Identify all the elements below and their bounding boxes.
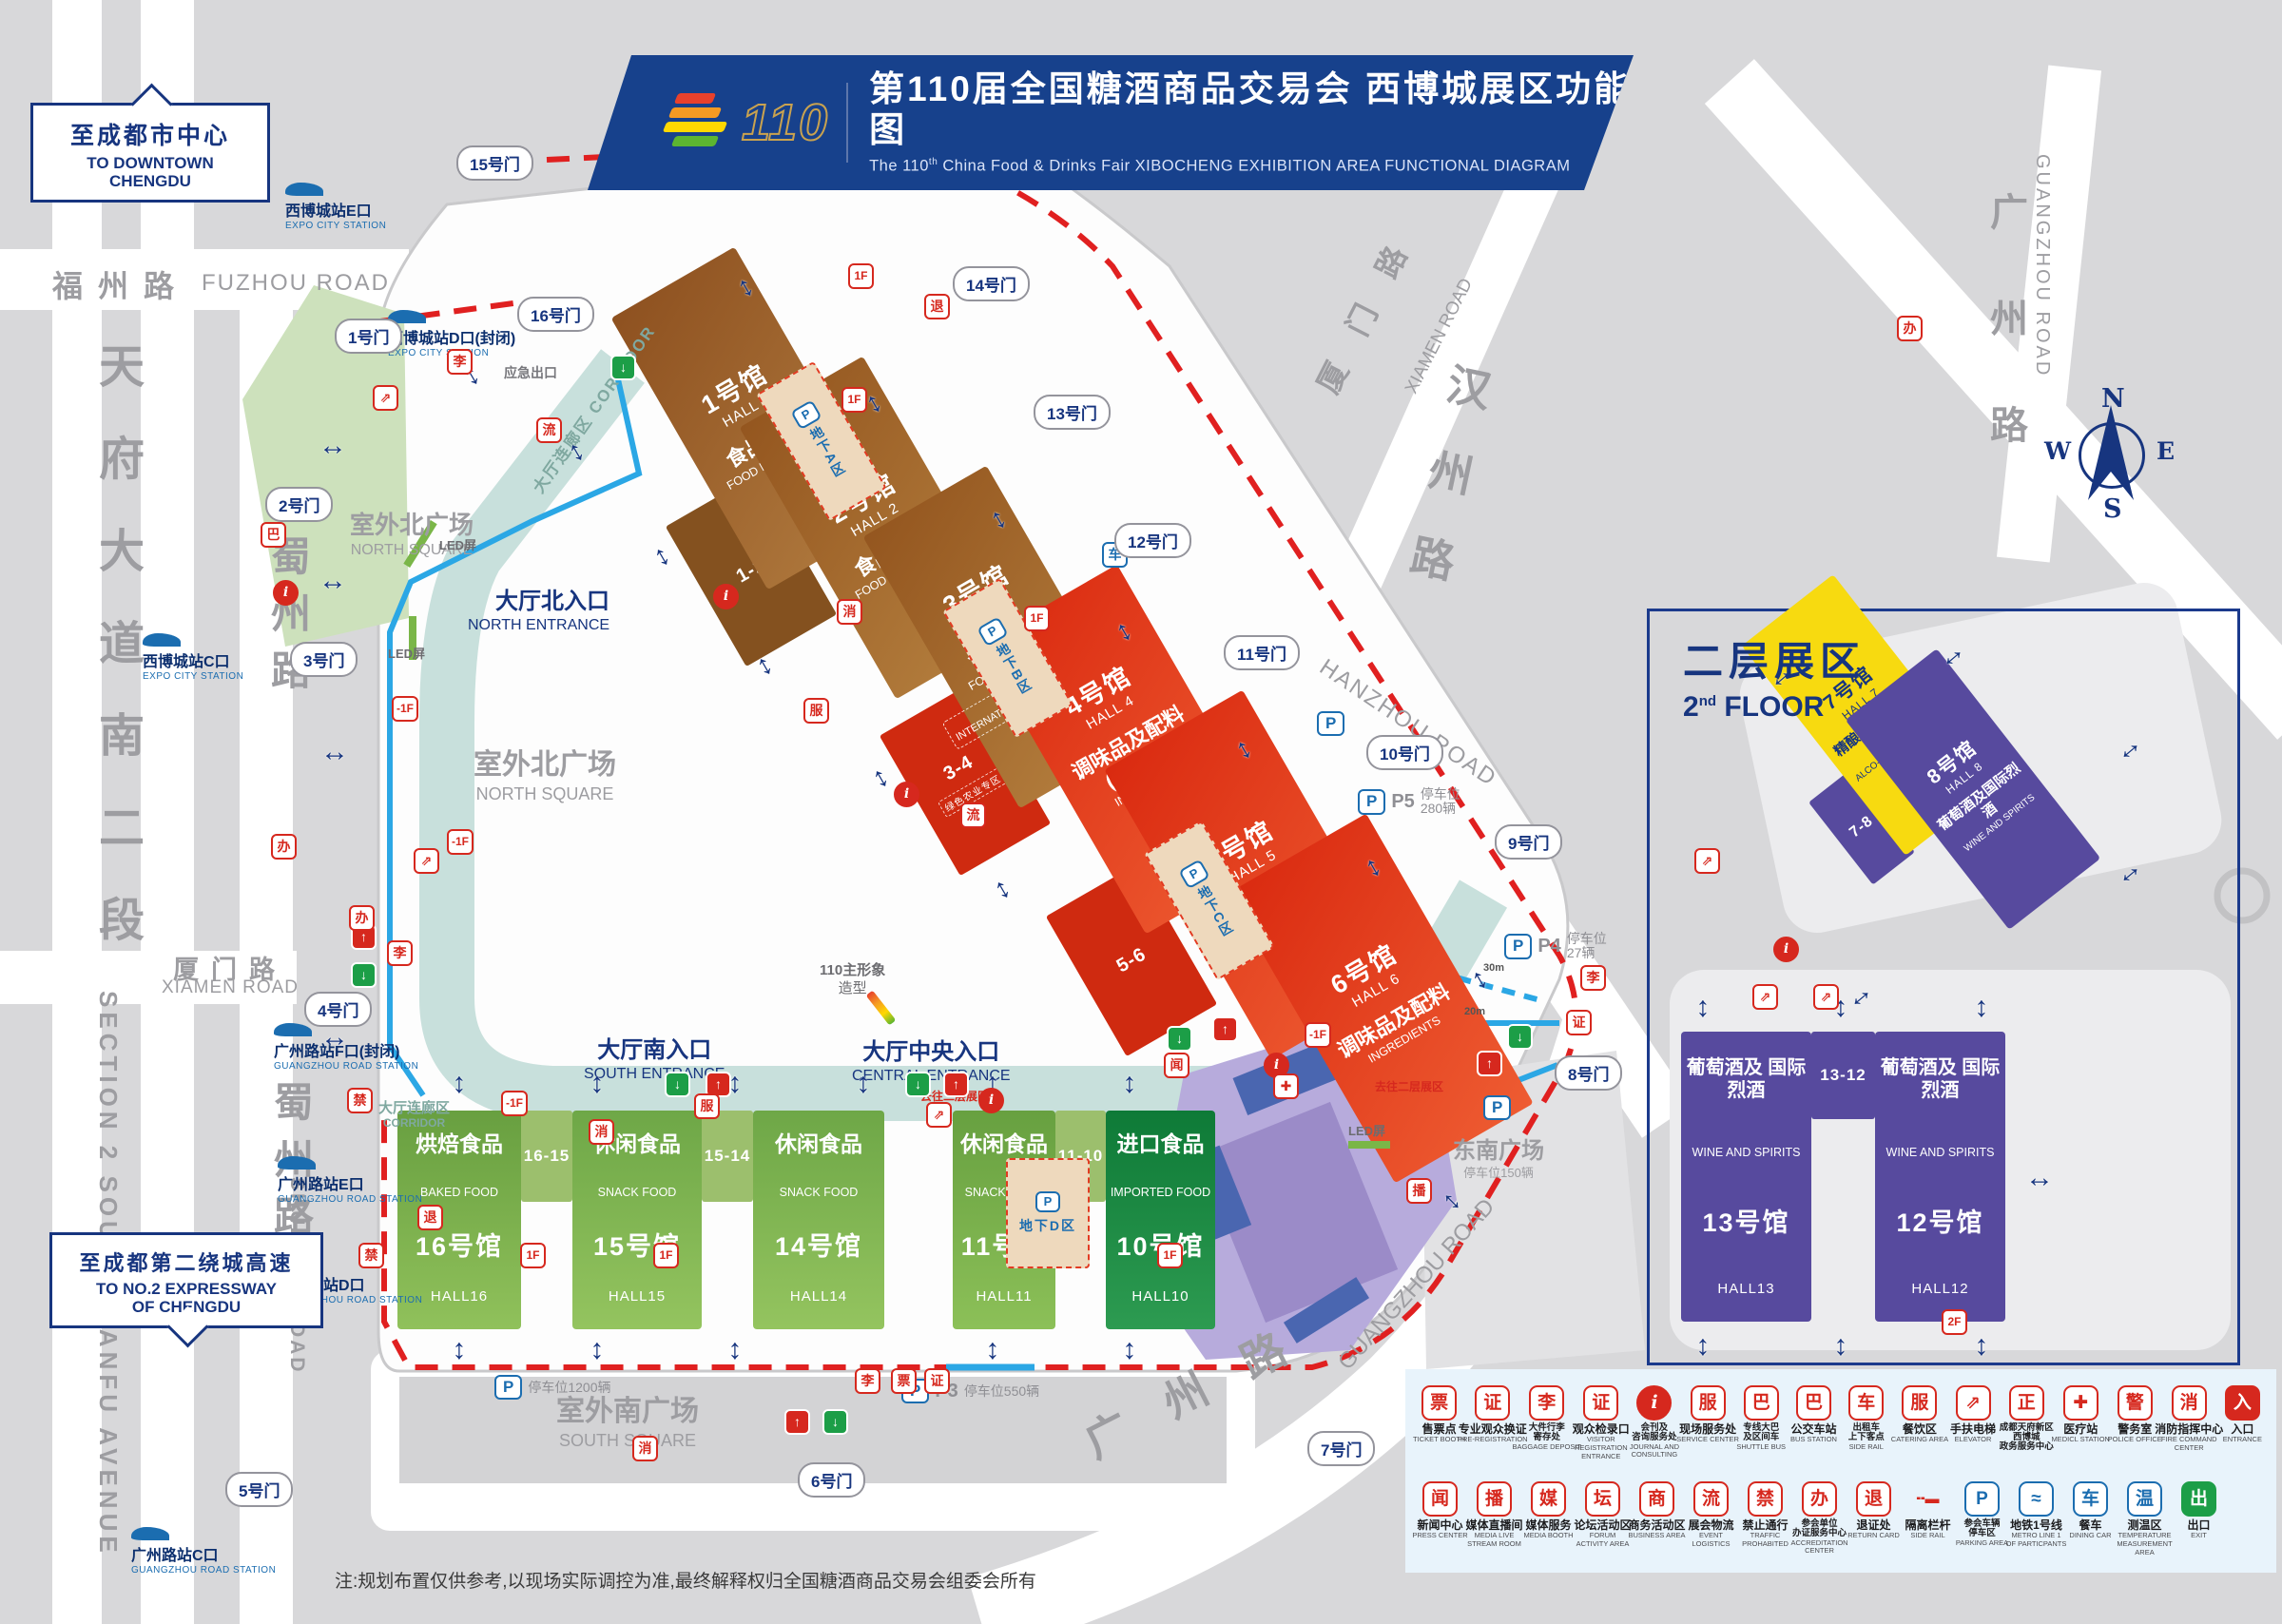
legend-label-cn: 地铁1号线 xyxy=(2010,1519,2062,1532)
no-entry-icon: 禁 xyxy=(1748,1481,1783,1517)
compass-ring xyxy=(2079,422,2145,489)
metro-station-name-en: EXPO CITY STATION xyxy=(285,221,466,231)
hall-text: HALL13 xyxy=(1717,1281,1774,1297)
legend-label-cn: 媒体直播间 xyxy=(1466,1519,1523,1532)
return-card-icon: 退 xyxy=(924,294,950,319)
hall-text: HALL14 xyxy=(790,1288,847,1305)
hall-text: 休闲食品 xyxy=(775,1131,862,1158)
registration-icon: 证 xyxy=(1475,1385,1510,1421)
legend-item: 车出租车 上下客点SIDE RAIL xyxy=(1840,1385,1892,1460)
floor-minus1f: -1F xyxy=(501,1091,528,1116)
service-icon: 坛 xyxy=(1585,1481,1620,1517)
legend-label-en: RETURN CARD xyxy=(1847,1532,1900,1540)
accreditation-icon: 办 xyxy=(1897,316,1923,341)
gate-g9: 9号门 xyxy=(1495,824,1562,860)
legend-label-en: TEMPERATURE MEASUREMENT AREA xyxy=(2117,1532,2172,1556)
legend-label-en: ELEVATOR xyxy=(1955,1436,1992,1444)
entrance-icon: ↑ xyxy=(784,1409,810,1435)
metro-station-name-en: GUANGZHOU ROAD STATION xyxy=(131,1565,312,1576)
legend-label-en: SIDE RAIL xyxy=(1849,1443,1884,1452)
legend-label-cn: 参会车辆 停车区 xyxy=(1963,1519,2000,1538)
legend-label-en: FORUM ACTIVITY AREA xyxy=(1576,1532,1630,1548)
connector-label: 3-4 xyxy=(940,751,977,785)
label-line: 停车位150辆 xyxy=(1453,1166,1544,1181)
legend-label-en: MEDIA BOOTH xyxy=(1523,1532,1573,1540)
baggage-icon: 李 xyxy=(1529,1385,1564,1421)
parking-pkse: P xyxy=(1483,1095,1511,1120)
exit-icon: 出 xyxy=(2181,1481,2216,1517)
legend-item: 办参会单位 办证服务中心ACCREDITATION CENTER xyxy=(1792,1481,1847,1556)
service-icon: 服 xyxy=(1902,1385,1937,1421)
label-line: 大厅中央入口 xyxy=(852,1038,1011,1067)
direction-arrow-icon: ↔ xyxy=(1691,995,1723,1023)
parking-capacity: 停车位1200辆 xyxy=(528,1381,610,1395)
direction-arrow-icon: ↔ xyxy=(447,1337,479,1365)
exit-icon: ↓ xyxy=(665,1072,690,1097)
bus-icon: 巴 xyxy=(1796,1385,1831,1421)
exit-icon: ↓ xyxy=(610,355,636,380)
accreditation-icon: 办 xyxy=(349,905,375,931)
legend-item: 温测温区TEMPERATURE MEASUREMENT AREA xyxy=(2118,1481,2172,1556)
label-line: 20m xyxy=(1464,1006,1485,1019)
metro-station-m_c_gz: 广州路站C口GUANGZHOU ROAD STATION xyxy=(131,1527,312,1576)
registration-icon: 证 xyxy=(1583,1385,1618,1421)
legend-label-cn: 专线大巴 及区间车 xyxy=(1743,1423,1779,1442)
legend-item: 禁禁止通行TRAFFIC PROHABITED xyxy=(1738,1481,1792,1556)
label-line: 去往二层展区 xyxy=(1375,1080,1443,1094)
legend-label-cn: 医疗站 xyxy=(2063,1423,2098,1436)
medical-icon: ✚ xyxy=(1273,1073,1299,1099)
label-line: NORTH SQUARE xyxy=(474,783,616,805)
ticket-icon: 票 xyxy=(891,1368,917,1394)
return-card-icon: 退 xyxy=(417,1205,443,1230)
legend-label-en: CATERING AREA xyxy=(1891,1436,1948,1444)
legend-label-cn: 售票点 xyxy=(1422,1423,1457,1436)
legend-label-en: ACCREDITATION CENTER xyxy=(1790,1539,1847,1556)
info-icon: i xyxy=(978,1088,1004,1113)
connector-c1312: 13-12 xyxy=(1811,1032,1875,1119)
label-line: 110主形象 xyxy=(820,962,885,980)
metro-station-name: 广州路站E口 xyxy=(278,1171,458,1194)
hall-text: 进口食品 xyxy=(1117,1131,1205,1158)
gate-g16: 16号门 xyxy=(517,297,594,332)
label-line: 室外南广场 xyxy=(556,1394,699,1430)
parking-pk4: PP4停车位 27辆 xyxy=(1504,932,1607,961)
label-line: 东南广场 xyxy=(1453,1137,1544,1166)
escalator-icon: ⇗ xyxy=(926,1102,952,1128)
logistics-icon: 流 xyxy=(536,417,562,443)
legend-label-en: SHUTTLE BUS xyxy=(1736,1443,1786,1452)
legend-label-cn: 消防指挥中心 xyxy=(2155,1423,2223,1436)
direction-arrow-icon: ↔ xyxy=(1691,1333,1723,1362)
legend-label-en: SERVICE CENTER xyxy=(1676,1436,1739,1444)
floor-1f: 1F xyxy=(848,263,874,289)
legend-label-cn: 餐车 xyxy=(2079,1519,2101,1532)
legend-label-cn: 会刊及 咨询服务处 xyxy=(1632,1423,1677,1442)
entrance-icon: ↑ xyxy=(943,1072,969,1097)
metro-station-name-en: GUANGZHOU ROAD STATION xyxy=(278,1194,458,1205)
media-icon: 播 xyxy=(1406,1178,1432,1204)
floor2-title-cn: 二层展区 xyxy=(1683,629,1866,687)
floor-1f: 1F xyxy=(841,387,867,413)
legend-label-en: PARKING AREA xyxy=(1956,1539,2008,1548)
divider xyxy=(846,83,848,163)
press-icon: 闻 xyxy=(1164,1053,1189,1078)
direction-arrow-icon: ↔ xyxy=(319,565,347,597)
entrance-icon: 入 xyxy=(2225,1385,2260,1421)
legend-label-en: EVENT LOGISTICS xyxy=(1692,1532,1730,1548)
direction-arrow-icon: ↔ xyxy=(2025,1162,2054,1194)
barrier-icon: ╍▬ xyxy=(1910,1481,1945,1517)
info-icon: i xyxy=(1773,937,1799,962)
page-title: 第110届全国糖酒商品交易会 西博城展区功能图 xyxy=(869,69,1634,150)
exit-icon: ↓ xyxy=(822,1409,848,1435)
connector-c1615: 16-15 xyxy=(521,1111,572,1202)
floor-1f: 1F xyxy=(520,1243,546,1268)
legend-label-cn: 出口 xyxy=(2187,1519,2210,1532)
hall-text: SNACK FOOD xyxy=(780,1186,859,1199)
legend-label-cn: 现场服务处 xyxy=(1679,1423,1736,1436)
escalator-icon: ⇗ xyxy=(1694,848,1720,874)
gate-g4: 4号门 xyxy=(304,992,372,1027)
legend-label-en: ENTRANCE xyxy=(2223,1436,2262,1444)
parking-icon: P xyxy=(1483,1095,1511,1120)
direction-arrow-icon: ↔ xyxy=(1117,1337,1150,1365)
label-lbl_nsq2: 室外北广场NORTH SQUARE xyxy=(474,747,616,804)
legend-label-cn: 新闻中心 xyxy=(1417,1519,1462,1532)
hall-text: 葡萄酒及 国际烈酒 xyxy=(1685,1056,1808,1102)
legend-label-cn: 出租车 上下客点 xyxy=(1848,1423,1885,1442)
legend-item: 李大件行李 寄存处BAGGAGE DEPOSIT xyxy=(1519,1385,1574,1460)
service-icon: 服 xyxy=(803,698,829,724)
gate-g10: 10号门 xyxy=(1366,735,1443,770)
legend-row: 闻新闻中心PRESS CENTER播媒体直播间MEDIA LIVE STREAM… xyxy=(1413,1481,2269,1556)
hall-h12: 葡萄酒及 国际烈酒WINE AND SPIRITS12号馆HALL12 xyxy=(1875,1032,2005,1322)
legend-label-cn: 禁止通行 xyxy=(1742,1519,1788,1532)
road-label-rtf: 天 府 大 道 南 二 段 xyxy=(95,321,148,967)
legend-label-en: PRESS CENTER xyxy=(1412,1532,1467,1540)
ticket-icon: 票 xyxy=(1421,1385,1457,1421)
direction-arrow-icon: ↔ xyxy=(320,736,349,768)
disclaimer-note: 注:规划布置仅供参考,以现场实际调控为准,最终解释权归全国糖酒商品交易会组委会所… xyxy=(335,1571,1036,1594)
label-lbl_go2: 去往二层展区 xyxy=(1375,1080,1443,1094)
legend-label-cn: 论坛活动区 xyxy=(1575,1519,1632,1532)
gate-g14: 14号门 xyxy=(953,266,1030,301)
service-icon: 警 xyxy=(2118,1385,2153,1421)
exit-icon: ↓ xyxy=(905,1072,931,1097)
title-banner: 110 第110届全国糖酒商品交易会 西博城展区功能图 The 110th Ch… xyxy=(588,55,1634,190)
direction-arrow-icon: ↔ xyxy=(1969,1333,2002,1362)
direction-arrow-icon: ↔ xyxy=(447,1071,479,1099)
legend-label-cn: 媒体服务 xyxy=(1525,1519,1571,1532)
legend-label-en: SIDE RAIL xyxy=(1910,1532,1944,1540)
hall-h10: 进口食品IMPORTED FOOD10号馆HALL10 xyxy=(1106,1111,1215,1329)
floor-minus1f: -1F xyxy=(392,696,418,722)
direction-arrow-icon: ↔ xyxy=(723,1337,755,1365)
parking-icon: P xyxy=(1964,1481,2000,1517)
legend-label-cn: 商务活动区 xyxy=(1629,1519,1686,1532)
accreditation-icon: 办 xyxy=(1802,1481,1837,1517)
road-label-rxm1-en: XIAMEN ROAD xyxy=(162,977,299,998)
gate-g12: 12号门 xyxy=(1114,523,1191,558)
gate-g6: 6号门 xyxy=(798,1462,865,1498)
metro-station-m_e_gz: 广州路站E口GUANGZHOU ROAD STATION xyxy=(278,1156,458,1205)
legend-label-cn: 餐饮区 xyxy=(1903,1423,1937,1436)
legend-item: 出出口EXIT xyxy=(2172,1481,2226,1556)
logistics-icon: 流 xyxy=(1693,1481,1729,1517)
legend-label-cn: 观众检录口 xyxy=(1573,1423,1630,1436)
legend-item: 商商务活动区BUSINESS AREA xyxy=(1630,1481,1684,1556)
fire-icon: 消 xyxy=(632,1436,658,1461)
hall-text: WINE AND SPIRITS xyxy=(1886,1146,1995,1159)
legend-item: ≈地铁1号线METRO LINE 1 OF PARTICPANTS xyxy=(2009,1481,2063,1556)
direction-arrow-icon: ↔ xyxy=(1969,995,2002,1023)
metro-icon xyxy=(274,1023,312,1036)
legend-item: i会刊及 咨询服务处JOURNAL AND CONSULTING xyxy=(1628,1385,1680,1460)
media-icon: 媒 xyxy=(1531,1481,1566,1517)
parking-number: P4 xyxy=(1537,936,1560,957)
gate-g11: 11号门 xyxy=(1224,635,1300,670)
road-label-rgz1-cn: 广 州 路 xyxy=(1987,160,2031,479)
parking-capacity: 停车位 27辆 xyxy=(1567,932,1607,961)
entrance-icon: ↑ xyxy=(1477,1051,1502,1076)
sign-expressway: 至成都第二绕城高速 TO NO.2 EXPRESSWAYOF CHENGDU xyxy=(49,1232,323,1328)
floor-minus1f: -1F xyxy=(1305,1022,1331,1048)
legend-item: 证观众检录口VISITOR REGISTRATION ENTRANCE xyxy=(1574,1385,1628,1460)
legend-label-en: BUS STATION xyxy=(1790,1436,1837,1444)
fire-icon: 消 xyxy=(2172,1385,2207,1421)
floor2-title-en: 2nd FLOOR xyxy=(1683,691,1866,724)
fair-logo-icon xyxy=(654,86,736,160)
metro-icon xyxy=(278,1156,316,1170)
hall-text: SNACK FOOD xyxy=(598,1186,677,1199)
legend-label-en: POLICE OFFICE xyxy=(2108,1436,2162,1444)
legend-item: 入入口ENTRANCE xyxy=(2216,1385,2269,1460)
legend-label-cn: 展会物流 xyxy=(1688,1519,1733,1532)
accreditation-icon: 办 xyxy=(271,834,297,860)
connector-label: 13-12 xyxy=(1820,1066,1866,1085)
metro-icon: ≈ xyxy=(2019,1481,2054,1517)
parking-capacity: 停车位 280辆 xyxy=(1421,787,1460,817)
label-lbl_20m: 20m xyxy=(1464,1006,1485,1019)
legend-item: ╍▬隔离栏杆SIDE RAIL xyxy=(1901,1481,1955,1556)
legend-item: 警警务室POLICE OFFICE xyxy=(2108,1385,2162,1460)
sign-downtown: 至成都市中心 TO DOWNTOWNCHENGDU xyxy=(30,103,270,203)
direction-arrow-icon: ↔ xyxy=(1828,1333,1861,1362)
return-card-icon: 退 xyxy=(1856,1481,1891,1517)
label-line: LED屏 xyxy=(388,647,425,662)
metro-station-name: 西博城站E口 xyxy=(285,198,466,221)
legend-label-en: FIRE COMMAND CENTER xyxy=(2161,1436,2217,1452)
baggage-icon: 李 xyxy=(387,940,413,966)
baggage-icon: 李 xyxy=(447,349,473,375)
legend-item: 巴公交车站BUS STATION xyxy=(1788,1385,1840,1460)
hall-text: WINE AND SPIRITS xyxy=(1692,1146,1801,1159)
parking-number: P5 xyxy=(1391,791,1414,813)
road-label-rfz-en: FUZHOU ROAD xyxy=(202,270,390,297)
underground-parking-uD: P地下D区 xyxy=(1006,1158,1090,1268)
parking-icon: P xyxy=(1358,789,1385,814)
floor2-title: 二层展区 2nd FLOOR xyxy=(1683,629,1866,724)
dining-car-icon: 车 xyxy=(2073,1481,2108,1517)
direction-arrow-icon: ↔ xyxy=(980,1337,1013,1365)
hall-h14: 休闲食品SNACK FOOD14号馆HALL14 xyxy=(753,1111,884,1329)
legend-item: 消消防指挥中心FIRE COMMAND CENTER xyxy=(2162,1385,2216,1460)
led-screen-bar xyxy=(1348,1141,1390,1149)
legend-label-en: MEDICL STATION xyxy=(2051,1436,2110,1444)
parking-capacity: 停车位550辆 xyxy=(964,1384,1039,1399)
legend-row: 票售票点TICKET BOOTH证专业观众换证PRE-REGISTRATION李… xyxy=(1413,1385,2269,1460)
legend-item: 媒媒体服务MEDIA BOOTH xyxy=(1521,1481,1576,1556)
baggage-icon: 李 xyxy=(855,1368,880,1394)
bus-icon: 巴 xyxy=(1744,1385,1779,1421)
label-line: 大厅连廊区 xyxy=(378,1101,450,1117)
connector-label: 16-15 xyxy=(524,1147,570,1166)
metro-station-name: 广州路站F口(封闭) xyxy=(274,1038,454,1061)
connector-label: 15-14 xyxy=(705,1147,750,1166)
legend-label-en: VISITOR REGISTRATION ENTRANCE xyxy=(1575,1436,1628,1460)
direction-arrow-icon: ↔ xyxy=(319,430,347,462)
exit-icon: ↓ xyxy=(1167,1026,1192,1052)
legend-label-cn: 大件行李 寄存处 xyxy=(1529,1423,1565,1442)
service-icon: 服 xyxy=(694,1093,720,1119)
hall-text: HALL10 xyxy=(1131,1288,1189,1305)
legend-item: 巴专线大巴 及区间车SHUTTLE BUS xyxy=(1735,1385,1788,1460)
hall-text: HALL12 xyxy=(1911,1281,1968,1297)
escalator-icon: ⇗ xyxy=(1752,984,1778,1010)
label-line: 大厅南入口 xyxy=(584,1036,725,1065)
escalator-icon: ⇗ xyxy=(1813,984,1839,1010)
legend-label-en: BAGGAGE DEPOSIT xyxy=(1513,1443,1582,1452)
service-icon: 服 xyxy=(1691,1385,1726,1421)
legend-label-cn: 入口 xyxy=(2231,1423,2253,1436)
legend-item: 服现场服务处SERVICE CENTER xyxy=(1681,1385,1735,1460)
fire-icon: 消 xyxy=(589,1119,614,1145)
legend-item: 闻新闻中心PRESS CENTER xyxy=(1413,1481,1467,1556)
parking-icon: P xyxy=(1317,711,1344,736)
label-lbl_led3: LED屏 xyxy=(1348,1124,1385,1139)
metro-icon xyxy=(143,633,181,647)
exit-icon: ↓ xyxy=(351,962,377,988)
label-line: LED屏 xyxy=(439,538,476,553)
label-lbl_sesq: 东南广场停车位150辆 xyxy=(1453,1137,1544,1181)
legend-label-cn: 隔离栏杆 xyxy=(1905,1519,1950,1532)
legend-label-cn: 退证处 xyxy=(1856,1519,1890,1532)
metro-station-m_e_expo: 西博城站E口EXPO CITY STATION xyxy=(285,183,466,231)
info-icon: i xyxy=(273,580,299,606)
medical-icon: ✚ xyxy=(2063,1385,2098,1421)
underground-label: 地下A区 xyxy=(805,422,850,481)
baggage-icon: 李 xyxy=(1580,965,1606,991)
legend-item: 车餐车DINING CAR xyxy=(2063,1481,2118,1556)
label-line: 应急出口 xyxy=(504,365,557,382)
legend-item: P参会车辆 停车区PARKING AREA xyxy=(1955,1481,2009,1556)
thermometer-icon: 温 xyxy=(2127,1481,2162,1517)
metro-station-m_f_gz: 广州路站F口(封闭)GUANGZHOU ROAD STATION xyxy=(274,1023,454,1072)
press-icon: 闻 xyxy=(1422,1481,1458,1517)
legend-label-en: TRAFFIC PROHABITED xyxy=(1742,1532,1789,1548)
registration-icon: 证 xyxy=(1566,1010,1592,1035)
hall-text: 烘焙食品 xyxy=(416,1131,503,1158)
legend-label-cn: 测温区 xyxy=(2127,1519,2161,1532)
legend-label-en: MEDIA LIVE STREAM ROOM xyxy=(1467,1532,1521,1548)
hall-text: HALL15 xyxy=(609,1288,666,1305)
hall-text: 休闲食品 xyxy=(960,1131,1048,1158)
registration-icon: 正 xyxy=(2009,1385,2044,1421)
parking-icon: P xyxy=(1035,1191,1061,1212)
direction-arrow-icon: ↔ xyxy=(851,1071,883,1099)
media-icon: 播 xyxy=(1477,1481,1512,1517)
escalator-icon: ⇗ xyxy=(1956,1385,1991,1421)
gate-g3: 3号门 xyxy=(290,642,358,677)
legend-item: ✚医疗站MEDICL STATION xyxy=(2054,1385,2108,1460)
info-icon: i xyxy=(1636,1385,1672,1421)
legend-label-en: DINING CAR xyxy=(2069,1532,2111,1540)
service-icon: 商 xyxy=(1639,1481,1674,1517)
direction-arrow-icon: ↔ xyxy=(585,1337,617,1365)
hall-text: IMPORTED FOOD xyxy=(1111,1186,1210,1199)
metro-icon xyxy=(285,183,323,196)
label-lbl_nent: 大厅北入口NORTH ENTRANCE xyxy=(468,588,609,635)
parking-icon: P xyxy=(494,1375,522,1400)
label-line: SOUTH SQUARE xyxy=(556,1430,699,1452)
label-line: CORRIDOR xyxy=(378,1117,450,1130)
label-line: LED屏 xyxy=(1348,1124,1385,1139)
gate-g15: 15号门 xyxy=(456,145,533,181)
bus-icon: 巴 xyxy=(261,522,286,548)
hall-text: 葡萄酒及 国际烈酒 xyxy=(1879,1056,2002,1102)
legend-panel: 票售票点TICKET BOOTH证专业观众换证PRE-REGISTRATION李… xyxy=(1405,1369,2276,1573)
connector-label: 5-6 xyxy=(1112,943,1150,977)
gate-g1: 1号门 xyxy=(335,319,402,354)
gate-g5: 5号门 xyxy=(225,1472,293,1507)
legend-label-cn: 公交车站 xyxy=(1790,1423,1836,1436)
legend-item: 服餐饮区CATERING AREA xyxy=(1892,1385,1946,1460)
floor-minus1f: -1F xyxy=(447,829,474,855)
legend-item: 播媒体直播间MEDIA LIVE STREAM ROOM xyxy=(1467,1481,1521,1556)
floor-1f: 1F xyxy=(1024,606,1050,631)
label-lbl_emg: 应急出口 xyxy=(504,365,557,382)
label-lbl_led1: LED屏 xyxy=(439,538,476,553)
legend-label-en: EXIT xyxy=(2191,1532,2207,1540)
legend-item: 坛论坛活动区FORUM ACTIVITY AREA xyxy=(1576,1481,1630,1556)
label-lbl_cor2: 大厅连廊区CORRIDOR xyxy=(378,1101,450,1130)
fire-icon: 消 xyxy=(837,599,862,625)
exit-icon: ↓ xyxy=(1507,1024,1533,1050)
legend-item: 正成都天府新区 西博城 政务服务中心 xyxy=(2000,1385,2054,1460)
label-line: NORTH ENTRANCE xyxy=(468,616,609,635)
underground-label: 地下C区 xyxy=(1193,881,1238,940)
gate-g7: 7号门 xyxy=(1307,1431,1375,1466)
escalator-icon: ⇗ xyxy=(373,385,398,411)
info-icon: i xyxy=(713,584,739,609)
legend-label-cn: 专业观众换证 xyxy=(1459,1423,1527,1436)
legend-label-en: BUSINESS AREA xyxy=(1628,1532,1685,1540)
gate-g2: 2号门 xyxy=(265,487,333,522)
hall-text: 14号馆 xyxy=(775,1226,862,1263)
label-lbl_ssq: 室外南广场SOUTH SQUARE xyxy=(556,1394,699,1451)
underground-label: 地下B区 xyxy=(992,639,1036,698)
label-line: 造型 xyxy=(820,980,885,998)
floor-2f: 2F xyxy=(1942,1309,1967,1335)
compass: N S W E xyxy=(2046,388,2176,521)
info-icon: i xyxy=(894,782,919,807)
page-subtitle: The 110th China Food & Drinks Fair XIBOC… xyxy=(869,157,1634,176)
floor-1f: 1F xyxy=(1157,1243,1183,1268)
legend-label-cn: 参会单位 办证服务中心 xyxy=(1792,1519,1847,1538)
label-line: 大厅北入口 xyxy=(468,588,609,616)
legend-label-en: JOURNAL AND CONSULTING xyxy=(1630,1443,1679,1460)
